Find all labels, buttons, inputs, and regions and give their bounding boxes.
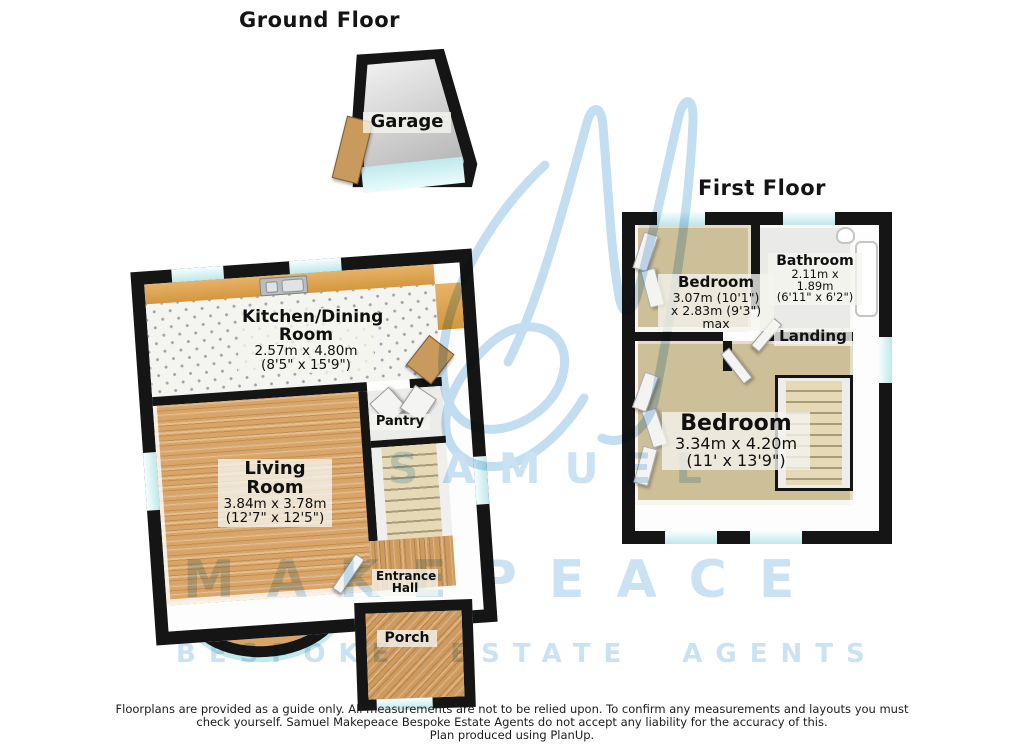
disclaimer-line-3: Plan produced using PlanUp.	[0, 729, 1024, 742]
first-floor-title: First Floor	[698, 176, 826, 200]
porch-floor	[366, 610, 465, 699]
sink-icon	[259, 275, 308, 296]
room-label-pantry: Pantry	[370, 414, 430, 430]
room-label-bedroom-large: Bedroom 3.34m x 4.20m (11' x 13'9")	[662, 412, 810, 470]
floorplan-canvas: Ground Floor First Floor	[0, 0, 1024, 745]
bedroom-large-window-2	[750, 531, 802, 544]
room-label-living: Living Room 3.84m x 3.78m (12'7" x 12'5"…	[218, 459, 332, 527]
bedroom-small-window	[657, 212, 705, 225]
porch-plan	[354, 599, 476, 711]
ground-floor-title: Ground Floor	[239, 8, 400, 32]
toilet-icon	[836, 227, 855, 244]
room-label-kitchen: Kitchen/Dining Room 2.57m x 4.80m (8'5" …	[238, 308, 374, 373]
room-label-bedroom-small: Bedroom 3.07m (10'1") x 2.83m (9'3") max	[658, 274, 774, 331]
upper-divider-wall-left	[635, 332, 723, 341]
room-label-porch: Porch	[377, 630, 437, 647]
stair-window	[473, 456, 489, 505]
bedroom-large-window-1	[665, 531, 717, 544]
room-label-garage: Garage	[363, 112, 451, 133]
disclaimer-text: Floorplans are provided as a guide only.…	[0, 703, 1024, 742]
landing-window	[879, 337, 892, 383]
room-label-bathroom: Bathroom 2.11m x 1.89m (6'11" x 6'2")	[768, 253, 862, 305]
kitchen-counter-right	[435, 282, 464, 330]
room-label-landing: Landing	[774, 328, 852, 346]
room-label-entrance-hall: Entrance Hall	[372, 569, 438, 596]
bathroom-window	[783, 212, 835, 225]
